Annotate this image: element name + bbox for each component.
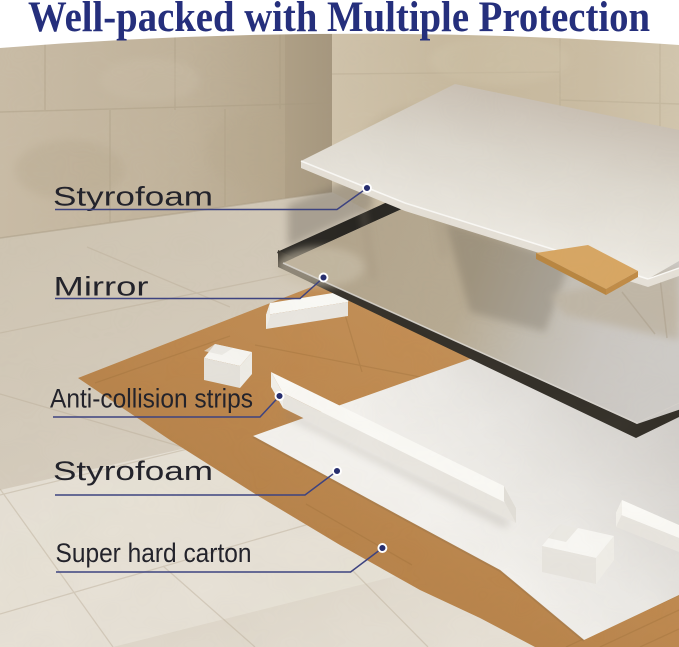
svg-text:Styrofoam: Styrofoam — [53, 456, 213, 486]
svg-text:Well-packed with Multiple Prot: Well-packed with Multiple Protection — [28, 0, 650, 41]
svg-text:Styrofoam: Styrofoam — [53, 182, 213, 212]
svg-text:Super hard carton: Super hard carton — [56, 538, 252, 568]
svg-text:Mirror: Mirror — [54, 272, 149, 302]
svg-text:Anti-collision strips: Anti-collision strips — [50, 384, 253, 414]
